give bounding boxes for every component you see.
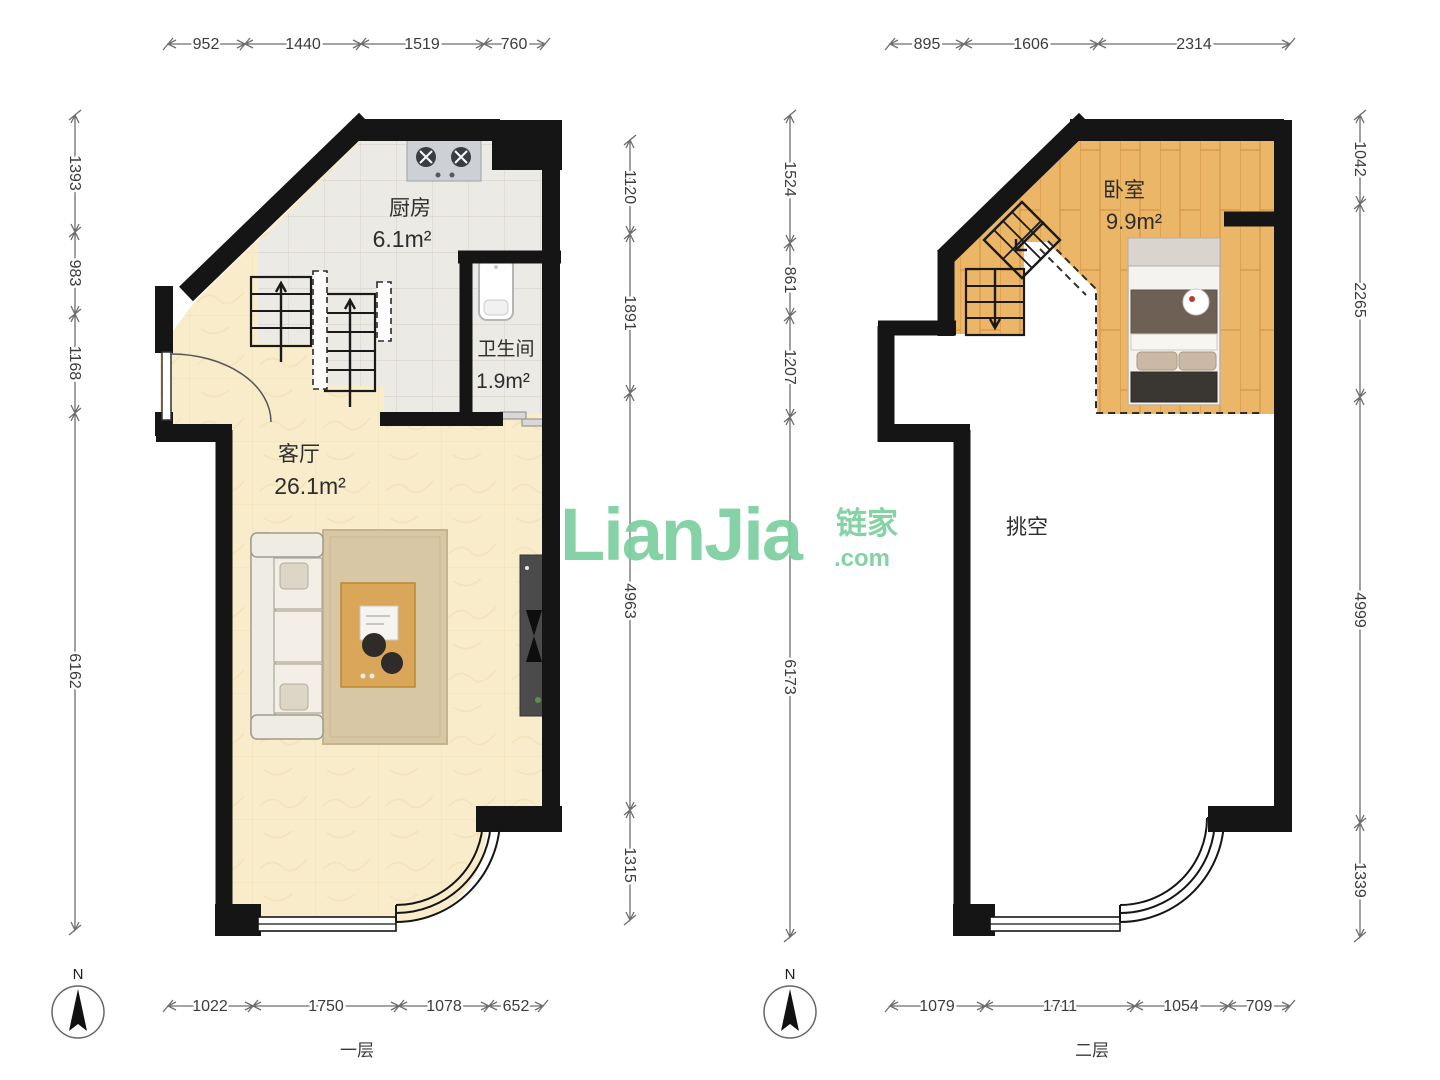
bay-window-arc — [1120, 818, 1224, 922]
stair-opening-dashed — [313, 271, 327, 389]
dim-value: 1054 — [1163, 998, 1199, 1015]
bathroom-area: 1.9m² — [476, 370, 530, 393]
dim-value: 1519 — [404, 36, 440, 53]
dim-value: 1393 — [66, 155, 83, 191]
sofa — [251, 533, 323, 739]
dim-value: 6173 — [781, 659, 798, 695]
dim-value: 1315 — [621, 847, 638, 883]
dim-value: 1891 — [621, 295, 638, 331]
compass-needle-icon — [781, 989, 799, 1031]
bathroom-label: 卫生间 — [477, 338, 534, 360]
bottom-window — [258, 917, 396, 931]
kitchen-area: 6.1m² — [373, 226, 432, 252]
bathtub-icon — [479, 258, 513, 320]
bottom-window — [990, 917, 1120, 931]
watermark-cjk-logo: 链家 — [836, 506, 898, 541]
dim-value: 1606 — [1013, 36, 1049, 53]
stair-opening-dashed — [377, 282, 391, 341]
watermark-latin-logo: LianJia — [560, 493, 804, 576]
bedroom-label: 卧室 — [1103, 179, 1145, 202]
living-room-area: 26.1m² — [274, 473, 346, 499]
dim-value: 1078 — [426, 998, 462, 1015]
dim-value: 1022 — [192, 998, 228, 1015]
floor-plan-canvas: 952 1440 1519 760 1393 983 1168 6162 112… — [0, 0, 1440, 1080]
second-floor-plan — [878, 120, 1292, 936]
dim-value: 952 — [193, 36, 220, 53]
dim-value: 2314 — [1176, 36, 1212, 53]
floor-plan-page: 952 1440 1519 760 1393 983 1168 6162 112… — [0, 0, 1440, 1080]
dim-value: 1207 — [781, 349, 798, 385]
stove-icon — [407, 139, 481, 181]
bed — [1128, 238, 1220, 405]
compass-needle-icon — [69, 989, 87, 1031]
kitchen-label: 厨房 — [389, 197, 431, 220]
dim-value: 1120 — [621, 170, 638, 205]
void-label: 挑空 — [1006, 516, 1048, 539]
first-floor-plan — [155, 120, 562, 936]
first-floor-label: 一层 — [340, 1041, 374, 1060]
compass-second-floor: N — [764, 966, 816, 1038]
dim-value: 1168 — [66, 346, 83, 381]
dim-value: 2265 — [1351, 282, 1368, 318]
bedroom-area: 9.9m² — [1106, 209, 1162, 234]
dim-value: 6162 — [66, 653, 83, 689]
compass-first-floor: N — [52, 966, 104, 1038]
lianjia-watermark: LianJia 链家 .com — [560, 493, 898, 576]
dim-value: 983 — [66, 260, 83, 287]
dim-value: 1524 — [781, 161, 798, 197]
compass-n-label: N — [73, 966, 84, 983]
compass-n-label: N — [785, 966, 796, 983]
dim-value: 1339 — [1351, 862, 1368, 898]
dim-value: 4963 — [621, 583, 638, 619]
dim-value: 1440 — [285, 36, 321, 53]
dim-value: 652 — [503, 998, 530, 1015]
dim-value: 1042 — [1351, 141, 1368, 177]
living-room-label: 客厅 — [278, 443, 320, 466]
dim-value: 760 — [501, 36, 528, 53]
dim-value: 1750 — [308, 998, 344, 1015]
dim-value: 709 — [1246, 998, 1273, 1015]
dim-value: 1711 — [1043, 998, 1078, 1015]
dim-value: 895 — [914, 36, 941, 53]
dim-value: 4999 — [1351, 592, 1368, 628]
coffee-table — [341, 583, 415, 687]
dim-value: 861 — [781, 267, 798, 294]
watermark-tld: .com — [834, 545, 890, 572]
tv-cabinet — [520, 555, 545, 716]
second-floor-label: 二层 — [1075, 1041, 1109, 1060]
dim-value: 1079 — [919, 998, 955, 1015]
